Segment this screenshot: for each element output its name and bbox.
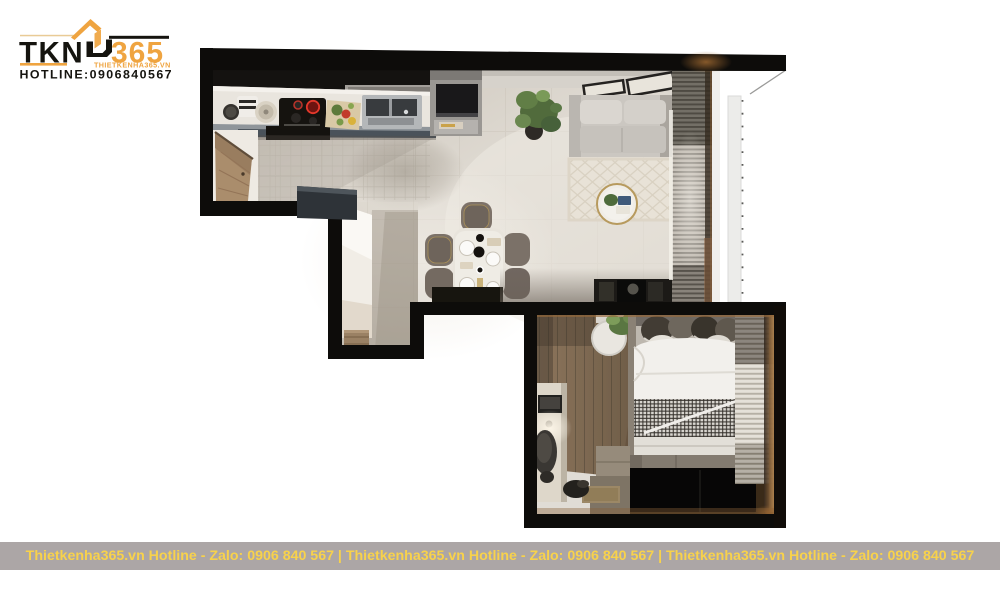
svg-text:HOTLINE:0906840567: HOTLINE:0906840567: [20, 68, 174, 82]
